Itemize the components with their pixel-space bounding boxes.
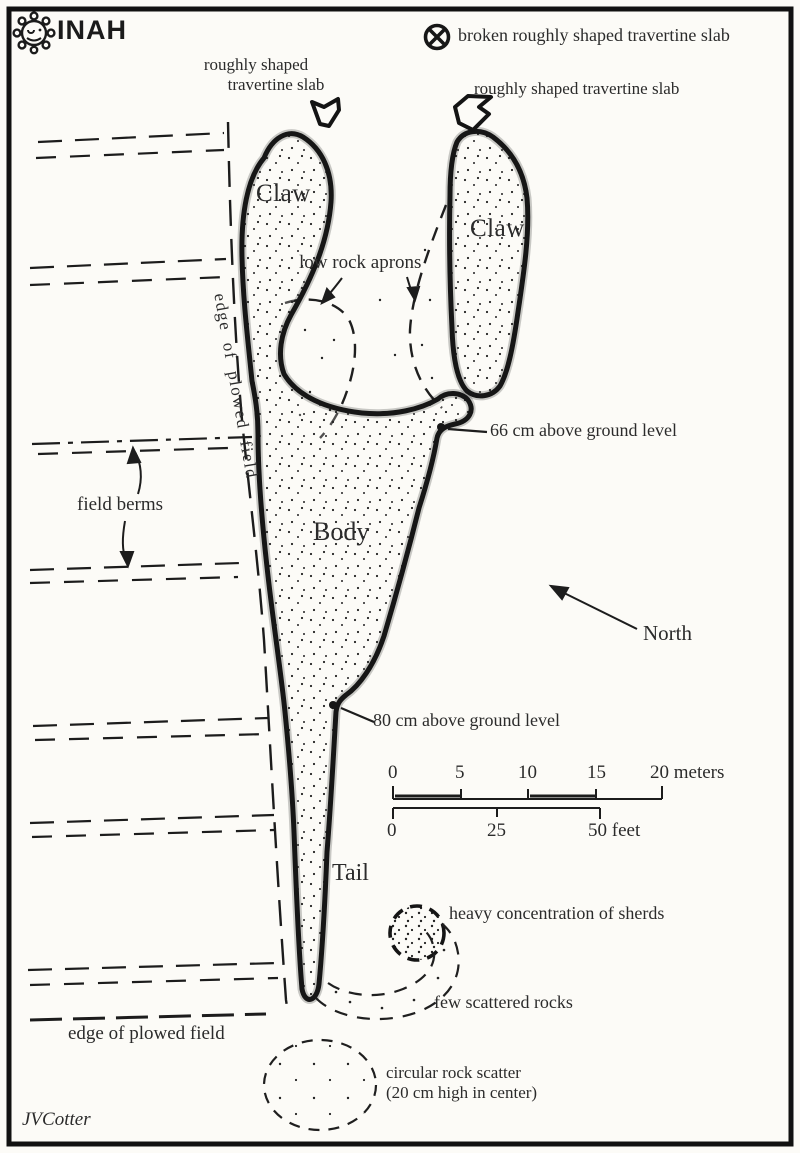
credit-signature: JVCotter	[22, 1110, 91, 1130]
sherds-label: heavy concentration of sherds	[449, 904, 664, 923]
slab-label-left-line1: roughly shaped	[182, 56, 330, 74]
tail-label: Tail	[332, 861, 369, 886]
meters-tick-15: 15	[587, 762, 606, 784]
scale-bar-meters	[393, 786, 662, 799]
inah-logo-text: INAH	[57, 16, 127, 44]
feet-tick-0: 0	[387, 820, 397, 842]
meters-end-label: 20 meters	[650, 762, 724, 784]
feet-end-label: 50 feet	[588, 820, 640, 842]
circle-x-icon	[426, 26, 449, 49]
meters-tick-0: 0	[388, 762, 398, 784]
meters-tick-5: 5	[455, 762, 465, 784]
rock-scatter-label-line1: circular rock scatter	[386, 1064, 521, 1082]
elev-66-label: 66 cm above ground level	[490, 421, 677, 440]
meters-tick-10: 10	[518, 762, 537, 784]
slab-label-left-line2: travertine slab	[202, 76, 350, 94]
claw-left-label: Claw	[256, 181, 311, 207]
site-plan-page: INAH broken roughly shaped travertine sl…	[0, 0, 800, 1153]
elev-80-label: 80 cm above ground level	[373, 711, 560, 730]
north-label: North	[643, 622, 692, 644]
travertine-slab-left-icon	[312, 99, 339, 126]
scale-bar-feet	[393, 808, 600, 819]
sherd-concentration-outline	[390, 906, 444, 960]
circular-rock-scatter-outline	[264, 1040, 376, 1130]
body-label: Body	[313, 518, 369, 545]
apron-stipple-dots	[299, 249, 433, 416]
low-rock-apron-right-outline	[410, 205, 446, 408]
low-rock-aprons-label: low rock aprons	[299, 253, 421, 273]
feet-tick-25: 25	[487, 820, 506, 842]
travertine-slab-right-icon	[455, 96, 491, 130]
scattered-rocks-label: few scattered rocks	[434, 993, 573, 1012]
edge-of-plowed-field-bottom-label: edge of plowed field	[68, 1024, 225, 1044]
rock-scatter-label-line2: (20 cm high in center)	[386, 1084, 537, 1102]
field-berms-label: field berms	[77, 495, 163, 515]
mound-right-claw-shape	[450, 131, 528, 395]
north-arrow	[551, 586, 637, 629]
legend-label: broken roughly shaped travertine slab	[458, 26, 730, 45]
claw-right-label: Claw	[470, 216, 525, 242]
site-plan-drawing	[0, 0, 800, 1153]
low-rock-aprons-arrows	[322, 277, 419, 303]
inah-logo-icon	[14, 13, 55, 54]
slab-label-right: roughly shaped travertine slab	[474, 80, 679, 98]
